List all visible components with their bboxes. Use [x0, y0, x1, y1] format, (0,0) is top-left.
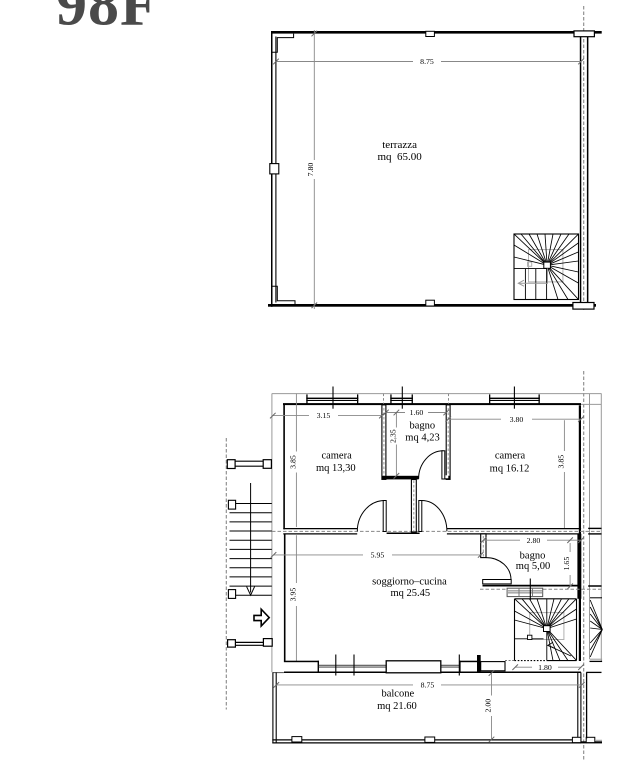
svg-text:balcone: balcone: [381, 689, 414, 700]
svg-text:camera: camera: [495, 451, 526, 462]
svg-text:3.85: 3.85: [288, 455, 297, 469]
svg-text:98F: 98F: [56, 0, 159, 39]
svg-text:mq 4,23: mq 4,23: [405, 433, 439, 444]
svg-text:2.00: 2.00: [484, 699, 493, 713]
svg-text:bagno: bagno: [520, 551, 546, 562]
svg-text:mq 25.45: mq 25.45: [390, 588, 430, 599]
svg-text:7.80: 7.80: [306, 163, 315, 177]
svg-text:5.95: 5.95: [371, 551, 385, 560]
svg-text:terrazza: terrazza: [382, 139, 417, 151]
svg-text:3.15: 3.15: [317, 411, 331, 420]
svg-text:3.95: 3.95: [288, 588, 297, 602]
svg-text:1.65: 1.65: [562, 557, 571, 571]
svg-text:mq 21.60: mq 21.60: [377, 701, 417, 712]
svg-text:3.85: 3.85: [556, 455, 565, 469]
svg-text:2.80: 2.80: [527, 536, 541, 545]
svg-text:8.75: 8.75: [421, 681, 435, 690]
svg-text:mq 16.12: mq 16.12: [490, 464, 530, 475]
svg-text:3.80: 3.80: [510, 415, 524, 424]
svg-text:mq 13,30: mq 13,30: [316, 463, 356, 474]
svg-text:8.75: 8.75: [420, 57, 434, 66]
svg-text:1.80: 1.80: [538, 663, 552, 672]
svg-text:2,35: 2,35: [388, 429, 397, 443]
svg-text:mq 5,00: mq 5,00: [516, 561, 550, 572]
svg-text:bagno: bagno: [409, 421, 435, 432]
svg-text:soggiorno–cucina: soggiorno–cucina: [372, 577, 447, 588]
svg-text:camera: camera: [321, 451, 352, 462]
svg-text:1.60: 1.60: [410, 408, 424, 417]
svg-text:mq 65.00: mq 65.00: [377, 151, 422, 163]
